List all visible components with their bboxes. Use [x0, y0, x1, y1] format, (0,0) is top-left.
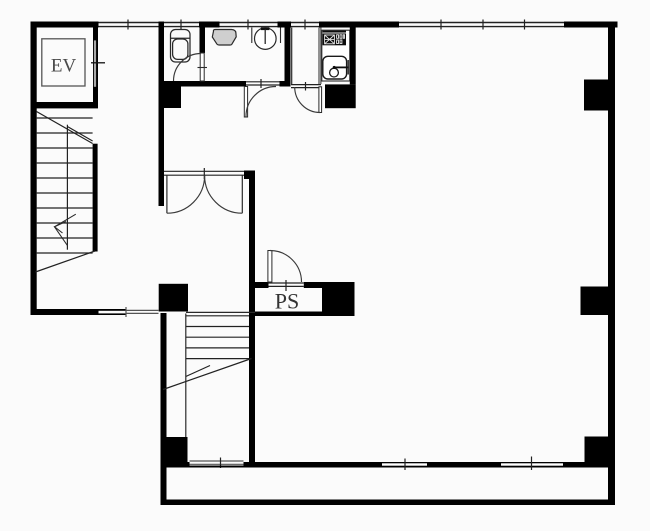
svg-text:PS: PS	[275, 289, 299, 314]
svg-text:EV: EV	[51, 55, 77, 76]
